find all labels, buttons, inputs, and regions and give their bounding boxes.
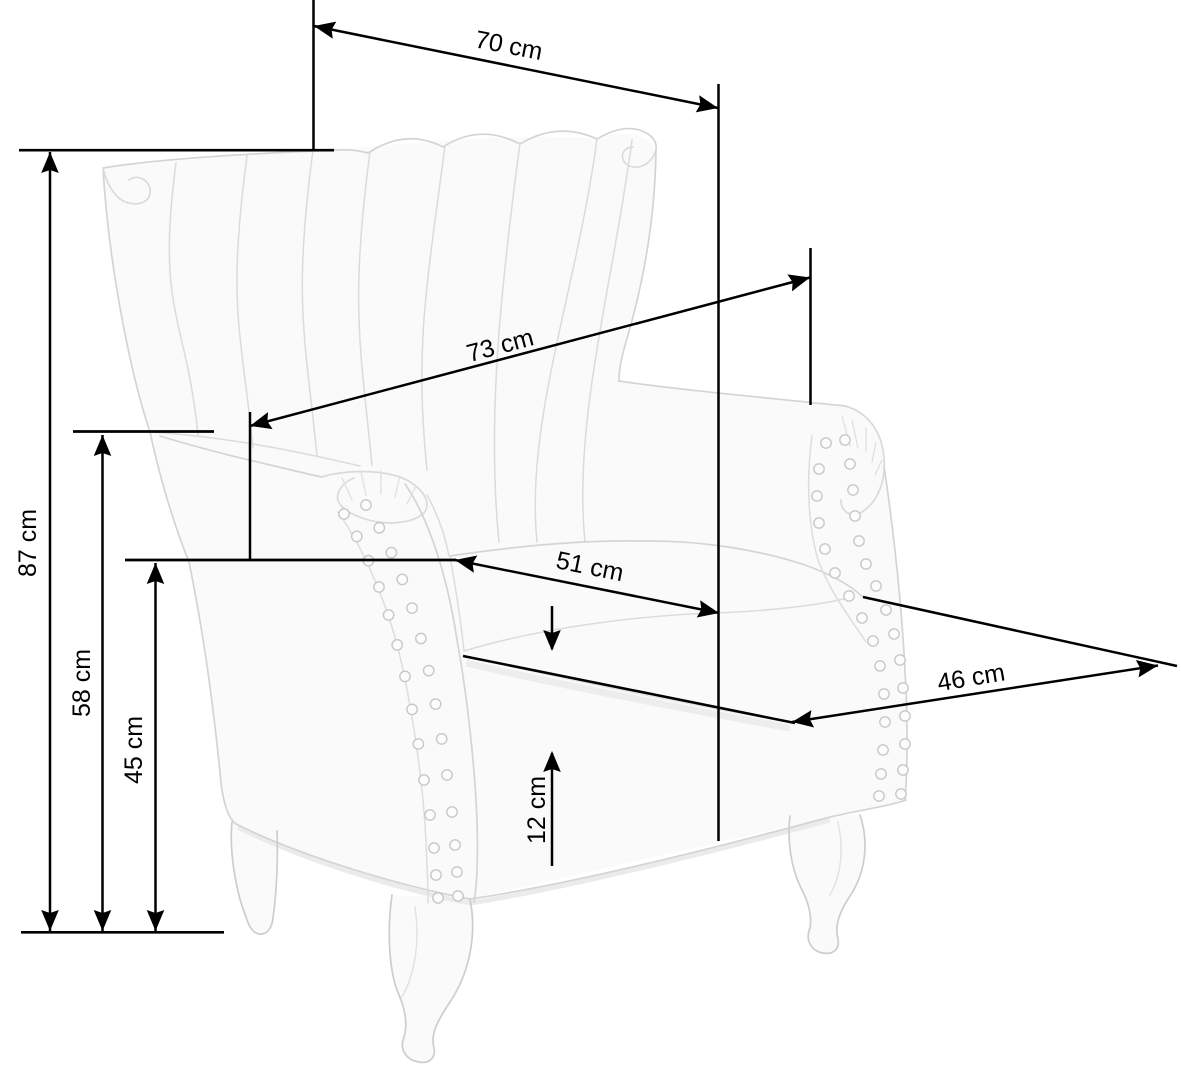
- svg-text:87 cm: 87 cm: [14, 509, 42, 577]
- svg-text:12 cm: 12 cm: [523, 776, 551, 844]
- svg-text:58 cm: 58 cm: [68, 649, 96, 717]
- svg-text:45 cm: 45 cm: [120, 716, 148, 784]
